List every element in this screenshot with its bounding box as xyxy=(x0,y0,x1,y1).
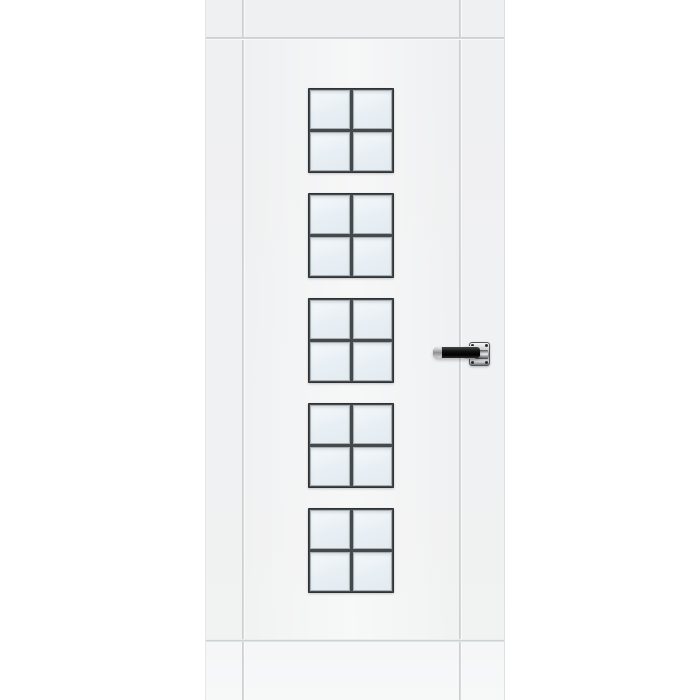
glass-pane xyxy=(353,510,393,549)
glass-pane xyxy=(310,447,350,486)
glass-pane xyxy=(353,132,393,171)
glass-pane xyxy=(310,552,350,591)
glazing-grid xyxy=(310,195,392,276)
glazing-unit-4 xyxy=(308,403,394,488)
screw-icon xyxy=(485,361,488,364)
glass-pane xyxy=(310,195,350,234)
left-stile-groove xyxy=(242,0,245,700)
handle-lever xyxy=(433,347,480,358)
glass-pane xyxy=(353,90,393,129)
glazing-grid xyxy=(310,300,392,381)
glass-pane xyxy=(310,300,350,339)
glass-pane xyxy=(353,552,393,591)
top-rail-groove xyxy=(206,37,504,40)
screw-icon xyxy=(485,344,488,347)
glass-pane xyxy=(353,342,393,381)
glass-pane xyxy=(310,237,350,276)
glass-pane xyxy=(353,195,393,234)
glass-pane xyxy=(353,405,393,444)
glass-pane xyxy=(310,510,350,549)
door-product-image xyxy=(0,0,700,700)
glass-pane xyxy=(353,237,393,276)
bottom-rail-groove xyxy=(206,639,504,642)
glazing-grid xyxy=(310,405,392,486)
glass-pane xyxy=(310,405,350,444)
glazing-grid xyxy=(310,90,392,171)
glazing-unit-1 xyxy=(308,88,394,173)
glazing-grid xyxy=(310,510,392,591)
glazing-unit-5 xyxy=(308,508,394,593)
glass-pane xyxy=(353,300,393,339)
glass-pane xyxy=(310,342,350,381)
lever-end-cap xyxy=(433,347,442,358)
glazing-unit-3 xyxy=(308,298,394,383)
glass-pane xyxy=(310,90,350,129)
screw-icon xyxy=(471,361,474,364)
glazing-unit-2 xyxy=(308,193,394,278)
glass-pane xyxy=(353,447,393,486)
door-leaf xyxy=(205,0,505,700)
glass-pane xyxy=(310,132,350,171)
